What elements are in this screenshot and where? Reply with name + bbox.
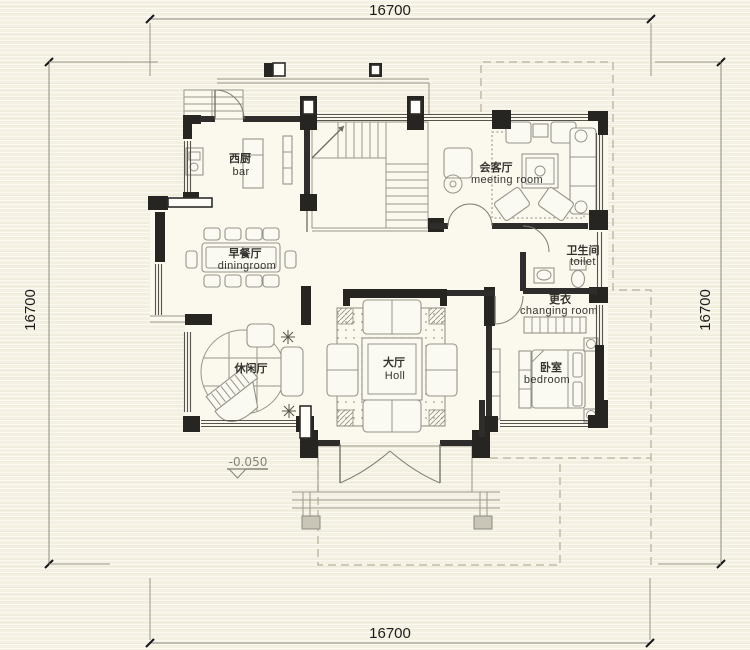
label-changing-zh: 更衣 [549, 292, 572, 306]
label-bedroom-zh: 卧室 [540, 360, 562, 374]
label-dining-en: diningroom [218, 260, 276, 272]
label-bedroom-en: bedroom [524, 374, 570, 386]
dim-bottom-value: 16700 [369, 625, 411, 642]
label-meeting-zh: 会客厅 [480, 160, 513, 174]
label-hall-en: Holl [385, 370, 406, 382]
label-meeting-en: meeting room [471, 174, 543, 186]
elevation-value: -0.050 [229, 455, 268, 469]
floor-plan-drawing: -0.050 西厨 bar 早餐厅 diningroom 休闲厅 大厅 Holl… [0, 0, 750, 650]
label-toilet-zh: 卫生间 [567, 243, 600, 257]
label-toilet-en: toilet [570, 256, 596, 268]
entrance-porch-steps [292, 446, 500, 529]
label-bar-zh: 西厨 [229, 152, 251, 165]
dim-top-value: 16700 [369, 2, 411, 19]
label-hall-zh: 大厅 [383, 355, 405, 369]
label-bar-en: bar [232, 166, 249, 178]
elevation-marker: -0.050 [227, 455, 268, 478]
dimension-top: 16700 [146, 2, 655, 76]
label-dining-zh: 早餐厅 [229, 246, 262, 260]
dimension-bottom: 16700 [146, 578, 654, 647]
door-main-entrance [340, 444, 440, 483]
hall-table [362, 338, 422, 400]
label-leisure-zh: 休闲厅 [234, 361, 268, 375]
label-changing-en: changing room [520, 305, 598, 317]
north-terrace [217, 63, 429, 114]
floor-plan-canvas: -0.050 西厨 bar 早餐厅 diningroom 休闲厅 大厅 Holl… [0, 0, 750, 650]
furniture-changing-room [524, 317, 586, 333]
dim-left-value: 16700 [22, 289, 39, 331]
dimension-left: 16700 [22, 58, 158, 568]
dimension-right: 16700 [655, 58, 725, 568]
dim-right-value: 16700 [697, 289, 714, 331]
